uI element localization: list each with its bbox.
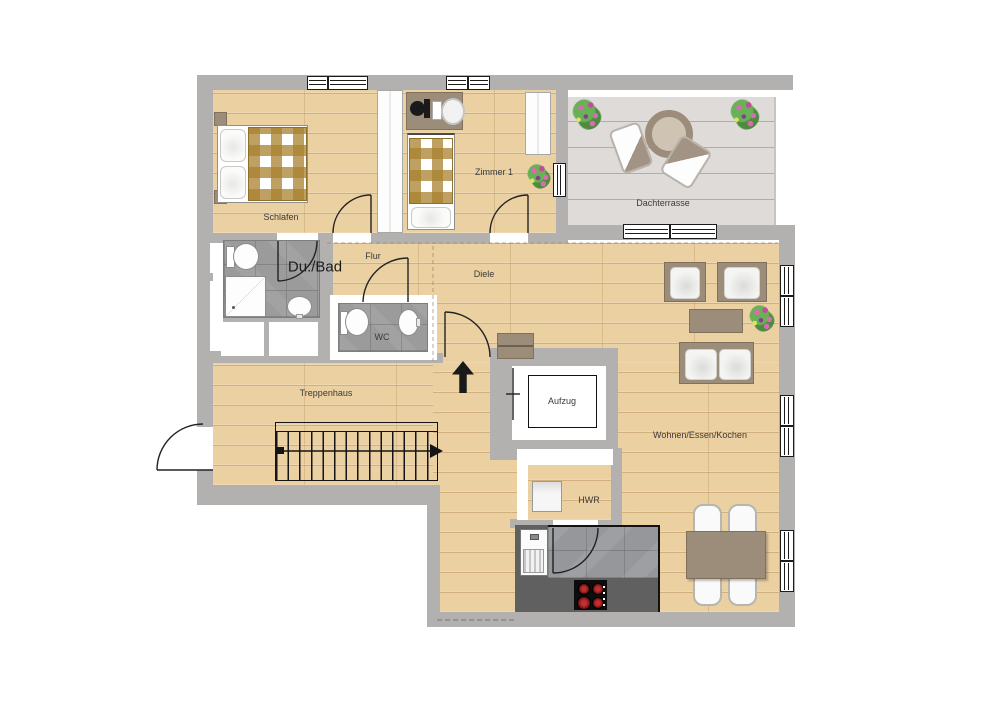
zimmer1-door-opening (490, 233, 528, 243)
burner-icon (578, 583, 590, 595)
window-sash (623, 224, 670, 239)
kitchen-edge-top (548, 525, 660, 527)
room-label-treppenhaus: Treppenhaus (300, 388, 353, 398)
room-label-schlafen: Schlafen (263, 212, 298, 222)
niche-bath-west-1 (210, 243, 223, 273)
room-label-diele: Diele (474, 269, 495, 279)
niche-bath-south-1 (221, 322, 264, 356)
room-label-zimmer1: Zimmer 1 (475, 167, 513, 177)
stair-risers (276, 431, 437, 480)
window-sash (328, 76, 368, 90)
wall-treppenhaus-south (197, 485, 440, 505)
window-sash (670, 224, 717, 239)
armchair-cushion (724, 267, 760, 299)
room-label-du-bad: Du./Bad (288, 259, 342, 276)
pillow (220, 166, 246, 199)
room-label-hwr: HWR (578, 495, 600, 505)
wall-zimmer1-terrace (556, 90, 568, 233)
shower-drain (232, 306, 235, 309)
plant-icon (749, 304, 775, 332)
window-living-1 (780, 265, 794, 327)
niche-under-aufzug (517, 449, 613, 465)
stove-knobs (603, 584, 605, 606)
window-sash (780, 426, 794, 457)
desk-lamp (424, 99, 430, 118)
armchair (664, 262, 706, 302)
terrace-railing (774, 97, 776, 225)
schlafen-door-opening (333, 233, 371, 243)
coffee-table (689, 309, 743, 333)
desk-chair-black (410, 101, 425, 116)
toilet-bowl-wc (345, 308, 369, 336)
room-label-wohnen: Wohnen/Essen/Kochen (653, 430, 747, 440)
sideboard (497, 333, 534, 359)
kitchen-sink-basin (523, 549, 544, 573)
window-zimmer1-terrace (553, 163, 566, 197)
window-zimmer1 (446, 76, 490, 90)
window-living-2 (780, 395, 794, 457)
window-sash (307, 76, 328, 90)
dining-table (686, 531, 766, 579)
wall-corridor-west (427, 503, 440, 627)
sink-tap-wc (416, 318, 421, 327)
plant-icon (730, 98, 760, 130)
window-living-3 (780, 530, 794, 592)
room-label-flur: Flur (365, 251, 381, 261)
sofa (679, 342, 754, 384)
window-sash (780, 296, 794, 327)
window-sash (780, 395, 794, 426)
window-sash (780, 530, 794, 561)
washing-machine (532, 481, 562, 512)
double-bed (217, 125, 308, 203)
toilet-bowl-bath (233, 243, 259, 270)
bed-blanket (409, 138, 453, 204)
window-sash (446, 76, 468, 90)
burner-icon (577, 596, 591, 610)
pillow (411, 207, 451, 228)
wall-bottom (427, 612, 795, 627)
window-sash (780, 265, 794, 296)
bed-blanket (248, 127, 307, 201)
hwr-west-strip (517, 449, 528, 520)
window-sash (780, 561, 794, 592)
wardrobe-zimmer1 (525, 92, 551, 155)
entrance-door-opening (197, 427, 213, 470)
nightstand (214, 112, 227, 126)
sofa-cushion (719, 349, 751, 380)
kitchen-floor (548, 527, 658, 578)
room-label-dachterrasse: Dachterrasse (636, 198, 690, 208)
plant-icon (527, 163, 551, 189)
shower-bath (225, 276, 266, 317)
window-sash (553, 163, 566, 197)
single-bed (407, 133, 455, 230)
armchair-cushion (670, 267, 700, 299)
room-label-wc: WC (375, 332, 390, 342)
niche-bath-south-2 (269, 322, 318, 356)
desk-chair-white (441, 98, 465, 125)
wall-top (197, 75, 793, 90)
kitchen-faucet (530, 534, 539, 540)
stove (574, 580, 607, 610)
sofa-cushion (685, 349, 717, 380)
plant-icon (572, 98, 602, 130)
room-label-aufzug: Aufzug (548, 396, 576, 406)
window-sash (468, 76, 490, 90)
wardrobe-schlafen (377, 90, 403, 233)
pillow (220, 129, 246, 162)
armchair (717, 262, 767, 302)
kitchen-edge-east (658, 525, 660, 612)
window-terrace (623, 224, 717, 239)
window-schlafen (307, 76, 368, 90)
staircase (275, 422, 438, 481)
floor-plan: Schlafen Zimmer 1 Dachterrasse Du./Bad F… (0, 0, 1000, 707)
sink-tap-bath (296, 314, 303, 319)
